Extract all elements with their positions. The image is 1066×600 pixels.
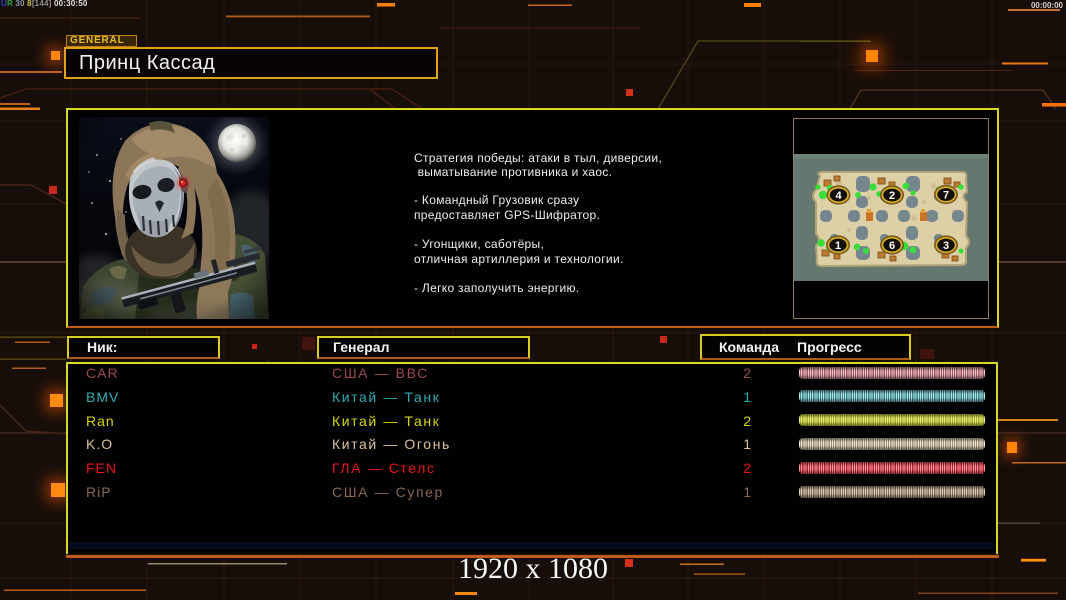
svg-text:7: 7 bbox=[943, 190, 949, 202]
svg-text:6: 6 bbox=[889, 240, 895, 252]
svg-text:4: 4 bbox=[835, 190, 842, 202]
svg-text:3: 3 bbox=[943, 240, 949, 252]
svg-text:1: 1 bbox=[835, 240, 841, 252]
svg-text:2: 2 bbox=[889, 190, 895, 202]
